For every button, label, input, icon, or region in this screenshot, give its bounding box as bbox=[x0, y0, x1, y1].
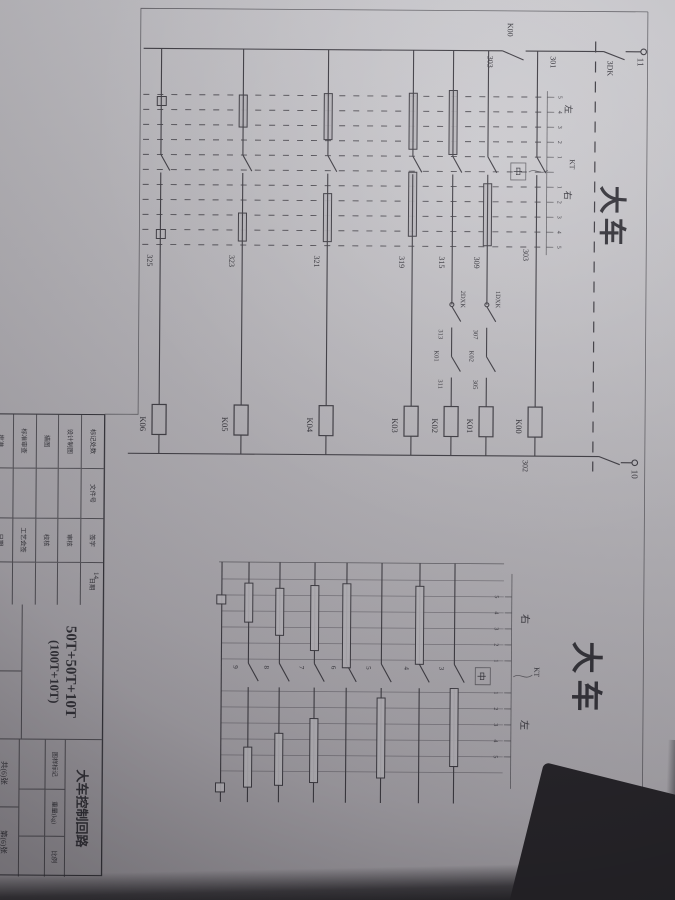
contact-closure-bars bbox=[156, 88, 492, 245]
right-direction-label: 右 bbox=[519, 614, 532, 624]
wire-label: 305 bbox=[471, 380, 478, 390]
controller-position-scale: 5 4 3 2 1 1 2 3 4 5 左 右 KT 中 bbox=[510, 91, 577, 255]
bus-303 bbox=[144, 48, 524, 60]
rev-header-doc: 文件号 bbox=[81, 469, 104, 519]
interlock-contact-label: K02 bbox=[467, 351, 474, 362]
right-direction-label: 右 bbox=[563, 191, 574, 200]
limit-switch-label: 1DXK bbox=[494, 291, 501, 309]
coil-label: K03 bbox=[390, 418, 400, 433]
product-cell: 50T+50T+10T (100T+10T) bbox=[21, 605, 102, 740]
sig-row-label: 设计制图 bbox=[58, 415, 81, 469]
rev-note: 14 bbox=[92, 572, 100, 579]
wire-label: 313 bbox=[437, 329, 444, 339]
wire-label: 307 bbox=[472, 330, 479, 341]
chart-title: 大车 bbox=[568, 641, 605, 717]
empty-cell bbox=[0, 671, 22, 739]
terminal-label: 11 bbox=[636, 58, 646, 67]
contactor-coil bbox=[479, 407, 493, 437]
rung-K00: 303 K00 bbox=[514, 51, 547, 456]
sig-row-label: 日期 bbox=[0, 518, 12, 562]
mini-header-scale: 比例 bbox=[44, 837, 64, 877]
sheet-frame bbox=[102, 8, 648, 880]
rung-K06: 325 K06 bbox=[138, 48, 171, 453]
wire-label: 315 bbox=[437, 256, 446, 268]
incoming-line: 11 3DK 301 K00 303 bbox=[143, 20, 646, 76]
interlock-contact-label: K01 bbox=[432, 350, 439, 361]
return-line: 10 302 bbox=[128, 453, 640, 479]
contactor-coil bbox=[152, 404, 166, 434]
empty-cell bbox=[35, 469, 58, 519]
pos-num: 5 bbox=[555, 246, 561, 249]
product-name: 50T+50T+10T bbox=[61, 626, 79, 718]
wire-label: 323 bbox=[227, 255, 236, 267]
empty-cell bbox=[12, 468, 35, 518]
coil-label: K00 bbox=[514, 419, 524, 434]
wire-label: 309 bbox=[472, 257, 481, 269]
wire-302-label: 302 bbox=[521, 460, 530, 472]
contact-number: 7 bbox=[297, 666, 305, 670]
contact-closure-bars bbox=[215, 583, 458, 794]
contactor-coil bbox=[444, 406, 458, 436]
switch-label: 3DK bbox=[605, 61, 614, 77]
rev-header-sign: 签字 bbox=[80, 519, 103, 563]
pos-num: 1 bbox=[556, 156, 562, 159]
empty-cell bbox=[0, 604, 22, 671]
wire-301-label: 301 bbox=[549, 56, 558, 68]
coil-label: K05 bbox=[220, 417, 230, 432]
sig-row-label: 工艺会签 bbox=[12, 518, 35, 562]
controller-name: KT bbox=[532, 667, 541, 677]
mini-header-weight: 重量(kg) bbox=[44, 790, 64, 837]
empty-cell bbox=[0, 468, 13, 518]
sig-row-label: 批准 bbox=[0, 414, 13, 468]
controller-chart-columns bbox=[136, 94, 541, 247]
contactor-coil bbox=[319, 406, 333, 436]
pos-num: 2 bbox=[556, 201, 562, 204]
chart-columns bbox=[218, 562, 504, 773]
wire-label: 325 bbox=[145, 254, 154, 266]
left-direction-label: 左 bbox=[518, 720, 531, 730]
terminal-11-circle bbox=[641, 49, 647, 55]
product-designation-block: 50T+50T+10T (100T+10T) bbox=[0, 604, 103, 740]
limit-switch-label: 2DXK bbox=[459, 291, 466, 309]
empty-cell bbox=[19, 740, 45, 790]
sig-row-label: 标准审查 bbox=[13, 414, 36, 468]
wire-label: 311 bbox=[436, 379, 443, 389]
control-circuit: 大车 11 3DK 301 K00 303 10 302 bbox=[128, 20, 647, 479]
wire-label: 321 bbox=[312, 256, 321, 268]
pos-num: 2 bbox=[556, 141, 562, 144]
contact-number: 9 bbox=[231, 665, 239, 669]
pos-num: 4 bbox=[555, 231, 561, 234]
empty-cell bbox=[57, 563, 80, 605]
empty-cell bbox=[0, 562, 12, 604]
controller-handle-icon bbox=[513, 675, 532, 677]
terminal-10-circle bbox=[632, 460, 638, 466]
rev-header-date: 日期 bbox=[80, 563, 103, 605]
sig-row-label: 描图 bbox=[35, 415, 58, 469]
product-name-alt: (100T+10T) bbox=[46, 640, 61, 703]
contactor-coil bbox=[404, 406, 418, 436]
empty-cell bbox=[12, 562, 35, 604]
contactor-coil bbox=[234, 405, 248, 435]
wire-label: 319 bbox=[397, 256, 406, 268]
sheet-total: 共(6)张 bbox=[0, 739, 19, 807]
terminal-label: 10 bbox=[630, 470, 640, 480]
coil-label: K01 bbox=[465, 419, 475, 434]
drawing-title: 大车控制回路 bbox=[64, 740, 102, 877]
pos-num: 3 bbox=[556, 126, 562, 129]
contact-number: 6 bbox=[329, 666, 337, 670]
boundary-label: 大车 bbox=[595, 186, 628, 250]
cab-boundary-dashed-line bbox=[593, 42, 596, 472]
pos-num: 1 bbox=[556, 186, 562, 189]
pos-num: 3 bbox=[555, 216, 561, 219]
title-block: 标记处数 文件号 签字 日期 设计制图 审核 描图 校核 bbox=[0, 413, 105, 876]
coil-label: K02 bbox=[430, 418, 440, 433]
revision-and-signature-table: 标记处数 文件号 签字 日期 设计制图 审核 描图 校核 bbox=[0, 414, 104, 605]
empty-cell bbox=[19, 790, 45, 837]
zero-position-label: 中 bbox=[476, 672, 487, 681]
holding-contact-label: K00 bbox=[506, 23, 515, 37]
drawing-title-block: 大车控制回路 图样标记 重量(kg) 比例 共(6)张 第(6)张 bbox=[0, 739, 102, 877]
sig-row-label: 校核 bbox=[35, 519, 58, 563]
zero-position-label: 中 bbox=[512, 167, 523, 176]
empty-cell bbox=[34, 563, 57, 605]
left-direction-label: 左 bbox=[563, 105, 574, 114]
contact-number: 8 bbox=[262, 665, 270, 669]
coil-label: K06 bbox=[138, 416, 148, 431]
wire-303-label: 303 bbox=[486, 56, 495, 68]
rev-header-mark: 标记处数 bbox=[81, 415, 104, 469]
contact-number: 4 bbox=[402, 666, 410, 670]
photo-of-schematic: 大车 11 3DK 301 K00 303 10 302 bbox=[0, 0, 675, 900]
coil-label: K04 bbox=[305, 417, 315, 432]
contactor-coil bbox=[528, 407, 542, 437]
rotated-drawing: 大车 11 3DK 301 K00 303 10 302 bbox=[0, 0, 666, 900]
contact-number: 3 bbox=[437, 667, 445, 671]
sig-row-label: 审核 bbox=[57, 519, 80, 563]
wire-label: 303 bbox=[521, 249, 530, 261]
empty-cell bbox=[58, 469, 81, 519]
contact-number: 5 bbox=[364, 666, 372, 670]
mini-header-mark: 图样标记 bbox=[44, 740, 64, 790]
empty-cell bbox=[18, 837, 44, 877]
sheet-number: 第(6)张 bbox=[0, 807, 19, 876]
pos-num: 4 bbox=[556, 111, 562, 114]
pos-num: 5 bbox=[556, 96, 562, 99]
controller-name: KT bbox=[568, 159, 577, 169]
